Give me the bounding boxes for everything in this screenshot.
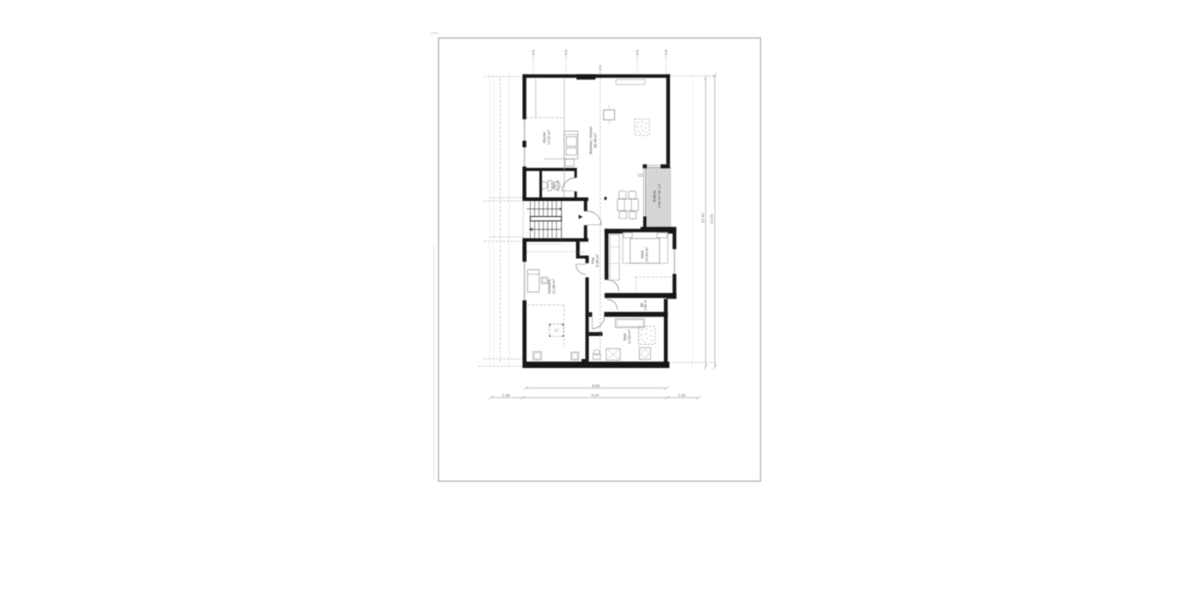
svg-text:14.53 m²: 14.53 m² [645,246,649,262]
svg-text:36.36 m²: 36.36 m² [593,132,597,148]
svg-text:11.03 m²: 11.03 m² [628,329,632,344]
svg-text:8.56: 8.56 [592,383,601,388]
svg-text:Küche: Küche [542,132,546,143]
svg-text:1.96: 1.96 [502,392,511,397]
svg-text:1.68 m²: 1.68 m² [644,299,648,311]
svg-text:14.31 m²: 14.31 m² [547,129,551,145]
svg-text:5.06 m²: 5.06 m² [596,253,600,267]
svg-text:Flur: Flur [591,256,595,263]
svg-text:Kind: Kind [640,251,644,259]
svg-text:12.42: 12.42 [700,212,705,223]
svg-text:Balkon: Balkon [653,190,657,202]
svg-text:2.86 m² ab 1/2: 2.86 m² ab 1/2 [658,184,662,208]
svg-text:12.96: 12.96 [709,213,714,224]
svg-text:Bad: Bad [623,334,627,341]
svg-text:1.82: 1.82 [678,392,687,397]
svg-text:Schlafen: Schlafen [548,279,552,294]
svg-text:2.12 m²: 2.12 m² [556,179,560,191]
svg-text:21.86 m²: 21.86 m² [552,278,556,294]
svg-text:Wohnen / Essen: Wohnen / Essen [589,127,593,155]
svg-text:9.04: 9.04 [591,393,600,398]
